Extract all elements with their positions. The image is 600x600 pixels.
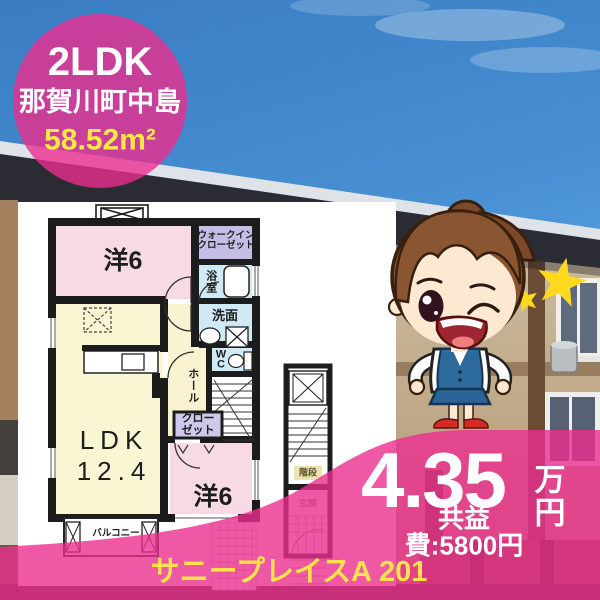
mascot-character	[389, 201, 534, 428]
mascot-layer	[0, 0, 600, 600]
listing-flyer: 洋6 ウォークイン クローゼット 浴室 洗面 W C ホール クロー ゼット L…	[0, 0, 600, 600]
